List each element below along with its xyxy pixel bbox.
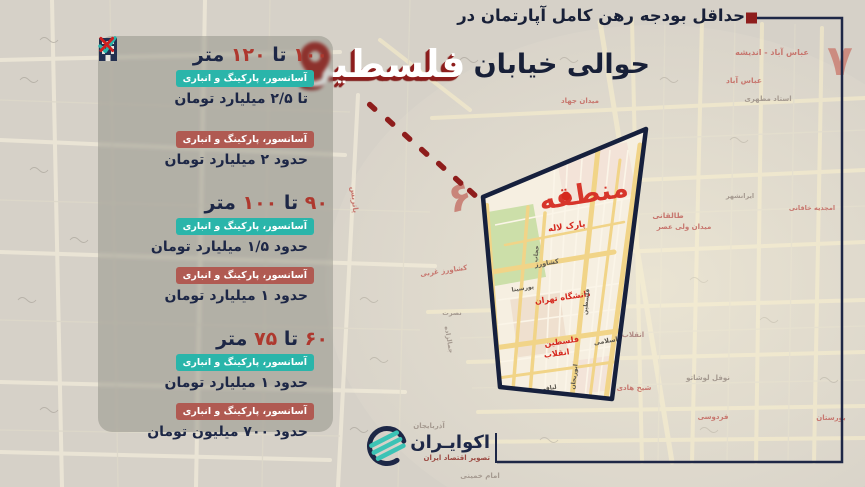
svg-text:عباس آباد: عباس آباد — [726, 75, 762, 85]
amenities-badge-with: آسانسور، پارکینگ و انباری — [176, 218, 314, 235]
price-without-amenities: حدود ۷۰۰ میلیون تومان — [103, 424, 308, 440]
svg-text:۷: ۷ — [827, 36, 853, 85]
amenities-badge-without: آسانسور، پارکینگ و انباری — [176, 131, 314, 148]
svg-text:نصرت: نصرت — [442, 309, 461, 317]
amenities-badge-with: آسانسور، پارکینگ و انباری — [176, 354, 314, 371]
headline-line1: حداقل بودجه رهن کامل آپارتمان در — [457, 6, 745, 25]
logo-name: اکوایـران — [410, 434, 490, 453]
svg-text:نوفل لوشاتو: نوفل لوشاتو — [685, 374, 730, 382]
svg-text:امجدیه خاقانی: امجدیه خاقانی — [789, 204, 835, 212]
size-group-90-100: ۹۰ تا ۱۰۰ متر آسانسور، پارکینگ و انباری … — [103, 192, 328, 304]
amenities-badge-without: آسانسور، پارکینگ و انباری — [176, 403, 314, 420]
headline-line2: حوالی خیابان فلسطین — [300, 42, 650, 86]
title-bullet-square — [746, 13, 757, 24]
infographic-canvas: عباس آباد - اندیشه عباس آباد استاد مطهری… — [0, 0, 865, 487]
price-with-amenities: حدود ۱/۵ میلیارد تومان — [103, 239, 308, 255]
size-group-60-75: ۶۰ تا ۷۵ متر آسانسور، پارکینگ و انباری ح… — [103, 328, 328, 440]
svg-text:میدان ولی عصر: میدان ولی عصر — [656, 223, 712, 231]
price-without-amenities: حدود ۲ میلیارد تومان — [103, 152, 308, 168]
svg-text:عباس آباد - اندیشه: عباس آباد - اندیشه — [735, 47, 809, 58]
headline-prefix: حوالی خیابان — [474, 49, 650, 80]
amenities-badge-with: آسانسور، پارکینگ و انباری — [176, 70, 314, 87]
svg-text:امام خمینی: امام خمینی — [460, 472, 499, 480]
svg-text:انقلاب: انقلاب — [622, 331, 644, 339]
price-info-panel: ۱۰۰ تا ۱۲۰ متر آسانسور، پارکینگ و انباری… — [98, 36, 333, 432]
ecoiran-logo: اکوایـران تصویر اقتصاد ایران — [365, 424, 497, 472]
price-with-amenities: حدود ۱ میلیارد تومان — [103, 375, 308, 391]
svg-text:استاد مطهری: استاد مطهری — [744, 95, 791, 103]
price-without-amenities: حدود ۱ میلیارد تومان — [103, 288, 308, 304]
logo-tagline: تصویر اقتصاد ایران — [424, 454, 491, 462]
svg-text:ایرانشهر: ایرانشهر — [725, 192, 754, 200]
svg-text:میدان جهاد: میدان جهاد — [561, 97, 599, 105]
svg-text:طالقانی: طالقانی — [652, 211, 683, 220]
ecoiran-logo-icon — [365, 424, 409, 468]
price-with-amenities: تا ۲/۵ میلیارد تومان — [103, 91, 308, 107]
amenities-badge-without: آسانسور، پارکینگ و انباری — [176, 267, 314, 284]
size-range-label: ۹۰ تا ۱۰۰ متر — [205, 192, 329, 214]
svg-text:شیخ هادی: شیخ هادی — [617, 384, 652, 392]
x-icon — [98, 36, 115, 53]
size-range-label: ۶۰ تا ۷۵ متر — [216, 328, 328, 350]
size-group-100-120: ۱۰۰ تا ۱۲۰ متر آسانسور، پارکینگ و انباری… — [103, 44, 328, 168]
logo-divider — [495, 433, 497, 463]
svg-text:فردوسی: فردوسی — [698, 413, 729, 421]
size-range-label: ۱۰۰ تا ۱۲۰ متر — [193, 44, 328, 66]
